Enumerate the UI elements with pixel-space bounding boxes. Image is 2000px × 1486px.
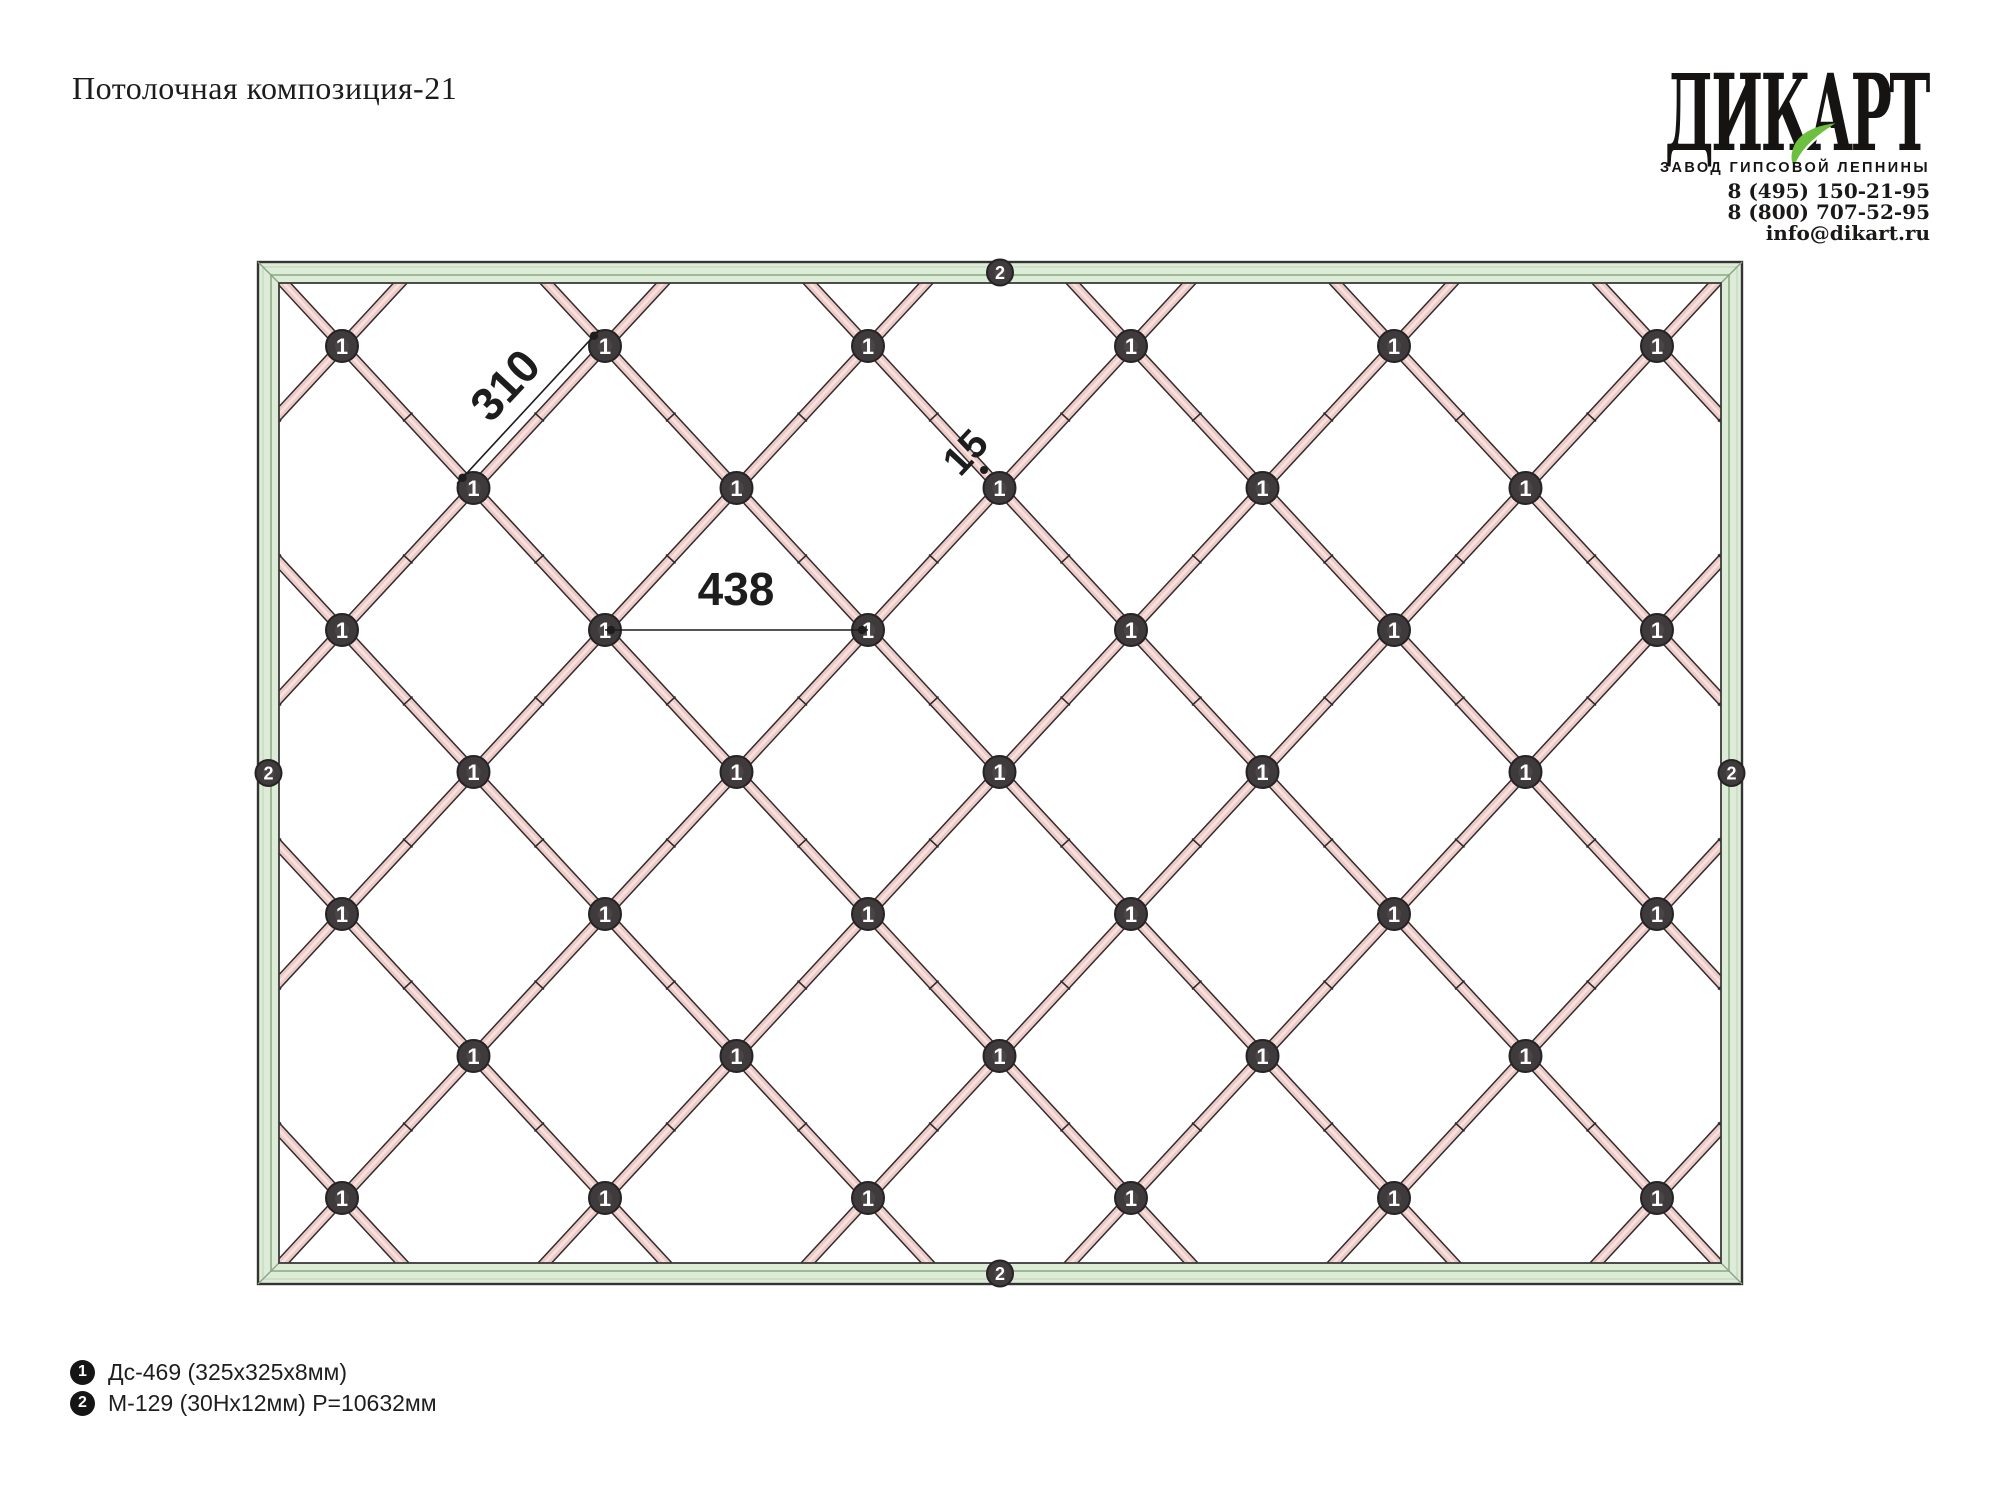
rosette-marker-badge: 1 — [1247, 1040, 1279, 1072]
svg-text:1: 1 — [730, 1044, 742, 1069]
rosette-marker-badge: 1 — [1510, 756, 1542, 788]
legend-marker-1: 1 — [70, 1360, 95, 1385]
svg-text:1: 1 — [1651, 618, 1663, 643]
rosette-marker-badge: 1 — [984, 756, 1016, 788]
rosette-marker-badge: 1 — [852, 330, 884, 362]
rosette-marker-badge: 1 — [326, 330, 358, 362]
legend: 1 Дс-469 (325x325x8мм) 2 М-129 (30Нх12мм… — [70, 1359, 437, 1421]
svg-text:1: 1 — [599, 1186, 611, 1211]
svg-text:1: 1 — [1125, 334, 1137, 359]
rosette-marker-badge: 1 — [852, 1182, 884, 1214]
page: Потолочная композиция-21 ДИКАРТ ЗАВОД ГИ… — [0, 0, 2000, 1486]
svg-text:1: 1 — [1256, 476, 1268, 501]
rosette-marker-badge: 1 — [1641, 330, 1673, 362]
svg-text:1: 1 — [862, 334, 874, 359]
molding-marker-badge: 2 — [987, 260, 1013, 286]
svg-text:2: 2 — [1726, 763, 1736, 783]
rosette-marker-badge: 1 — [1115, 1182, 1147, 1214]
rosette-marker-badge: 1 — [589, 1182, 621, 1214]
rosette-marker-badge: 1 — [1510, 1040, 1542, 1072]
rosette-marker-badge: 1 — [1115, 614, 1147, 646]
svg-text:2: 2 — [995, 263, 1005, 283]
svg-text:1: 1 — [1388, 1186, 1400, 1211]
rosette-marker-badge: 1 — [984, 472, 1016, 504]
svg-text:1: 1 — [467, 476, 479, 501]
rosette-marker-badge: 1 — [1641, 898, 1673, 930]
svg-text:1: 1 — [1125, 618, 1137, 643]
svg-text:2: 2 — [263, 763, 273, 783]
rosette-marker-badge: 1 — [1115, 330, 1147, 362]
svg-text:1: 1 — [599, 334, 611, 359]
rosette-marker-badge: 1 — [721, 472, 753, 504]
rosette-marker-badge: 1 — [721, 756, 753, 788]
rosette-marker-badge: 1 — [1247, 472, 1279, 504]
svg-text:1: 1 — [1125, 902, 1137, 927]
svg-text:1: 1 — [336, 334, 348, 359]
legend-item-rosette: 1 Дс-469 (325x325x8мм) — [70, 1359, 437, 1385]
svg-text:1: 1 — [336, 1186, 348, 1211]
svg-text:1: 1 — [467, 1044, 479, 1069]
svg-text:1: 1 — [1519, 1044, 1531, 1069]
rosette-marker-badge: 1 — [1641, 614, 1673, 646]
legend-marker-2: 2 — [70, 1391, 95, 1416]
rosette-marker-badge: 1 — [458, 1040, 490, 1072]
svg-text:1: 1 — [1388, 334, 1400, 359]
svg-text:1: 1 — [993, 1044, 1005, 1069]
rosette-marker-badge: 1 — [721, 1040, 753, 1072]
svg-text:1: 1 — [1519, 760, 1531, 785]
svg-text:1: 1 — [1651, 1186, 1663, 1211]
svg-text:1: 1 — [599, 902, 611, 927]
svg-text:1: 1 — [336, 618, 348, 643]
rosette-marker-badge: 1 — [326, 614, 358, 646]
svg-text:1: 1 — [730, 760, 742, 785]
rosette-marker-badge: 1 — [1378, 1182, 1410, 1214]
svg-text:1: 1 — [993, 476, 1005, 501]
molding-marker-badge: 2 — [987, 1261, 1013, 1287]
svg-text:1: 1 — [1651, 902, 1663, 927]
rosette-marker-badge: 1 — [1641, 1182, 1673, 1214]
svg-text:1: 1 — [1651, 334, 1663, 359]
svg-text:1: 1 — [1519, 476, 1531, 501]
rosette-marker-badge: 1 — [984, 1040, 1016, 1072]
molding-marker-badge: 2 — [256, 760, 282, 786]
rosette-marker-badge: 1 — [1378, 898, 1410, 930]
svg-text:1: 1 — [1256, 1044, 1268, 1069]
svg-text:1: 1 — [862, 902, 874, 927]
svg-text:1: 1 — [336, 902, 348, 927]
rosette-marker-badge: 1 — [326, 1182, 358, 1214]
rosette-marker-badge: 1 — [458, 756, 490, 788]
rosette-marker-badge: 1 — [1247, 756, 1279, 788]
svg-text:1: 1 — [1388, 618, 1400, 643]
legend-item-molding: 2 М-129 (30Нх12мм) Р=10632мм — [70, 1390, 437, 1416]
rosette-marker-badge: 1 — [589, 898, 621, 930]
rosette-marker-badge: 1 — [1378, 614, 1410, 646]
svg-text:1: 1 — [1125, 1186, 1137, 1211]
rosette-marker-badge: 1 — [1115, 898, 1147, 930]
legend-label-1: Дс-469 (325x325x8мм) — [108, 1359, 347, 1386]
lattice-straps — [0, 204, 2000, 1482]
ceiling-composition-drawing: 1111111111111111111111111111111111111112… — [0, 0, 2000, 1486]
svg-text:1: 1 — [862, 1186, 874, 1211]
svg-text:2: 2 — [995, 1264, 1005, 1284]
svg-text:1: 1 — [1256, 760, 1268, 785]
molding-marker-badge: 2 — [1719, 760, 1745, 786]
svg-text:1: 1 — [467, 760, 479, 785]
dimension-horizontal-label: 438 — [698, 563, 775, 615]
svg-text:1: 1 — [993, 760, 1005, 785]
rosette-marker-badge: 1 — [852, 898, 884, 930]
svg-text:1: 1 — [730, 476, 742, 501]
svg-text:1: 1 — [1388, 902, 1400, 927]
legend-label-2: М-129 (30Нх12мм) Р=10632мм — [108, 1390, 437, 1417]
rosette-marker-badge: 1 — [326, 898, 358, 930]
rosette-marker-badge: 1 — [1378, 330, 1410, 362]
rosette-marker-badge: 1 — [1510, 472, 1542, 504]
